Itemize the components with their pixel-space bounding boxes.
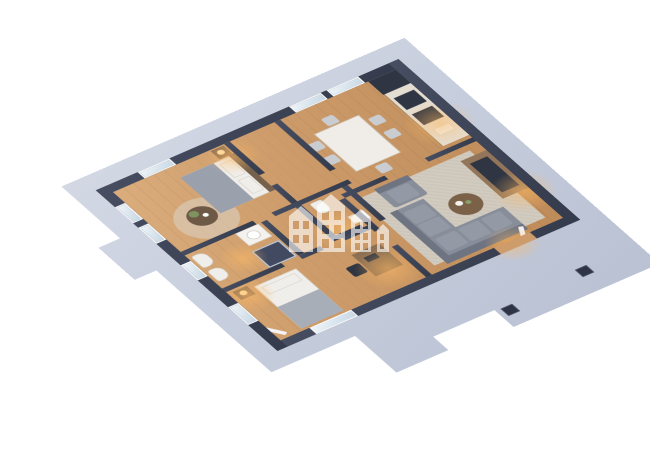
watermark-buildings-icon [281, 190, 395, 256]
floor-plan-render [0, 0, 650, 453]
